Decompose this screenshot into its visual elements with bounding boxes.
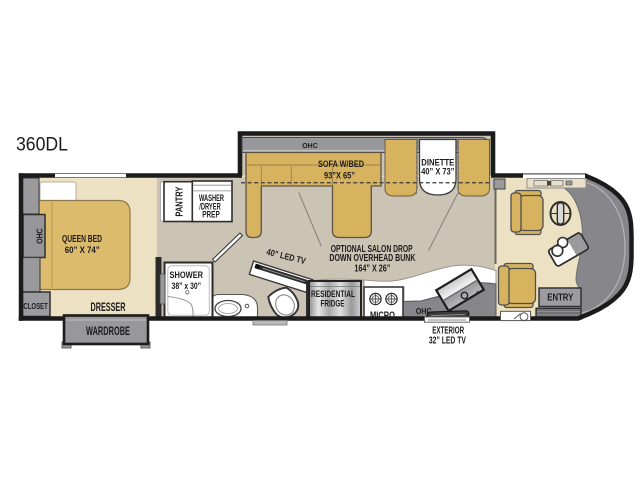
svg-text:93”X 65”: 93”X 65” [324, 170, 355, 181]
svg-text:360DL: 360DL [16, 135, 68, 156]
svg-text:60” X 74”: 60” X 74” [65, 245, 100, 256]
svg-text:38” x 30”: 38” x 30” [172, 281, 202, 292]
svg-text:OHC: OHC [36, 228, 45, 244]
svg-text:FRIDGE: FRIDGE [321, 299, 345, 310]
svg-text:CLOSET: CLOSET [23, 302, 48, 311]
svg-text:PREP: PREP [202, 210, 220, 220]
svg-text:164” X 26”: 164” X 26” [354, 263, 390, 274]
svg-text:WARDROBE: WARDROBE [86, 326, 130, 338]
svg-text:QUEEN BED: QUEEN BED [62, 234, 102, 245]
svg-text:ENTRY: ENTRY [547, 292, 573, 303]
svg-text:PANTRY: PANTRY [175, 186, 186, 216]
svg-text:32” LED TV: 32” LED TV [429, 336, 466, 347]
svg-text:DOWN OVERHEAD BUNK: DOWN OVERHEAD BUNK [329, 253, 415, 264]
svg-text:DRESSER: DRESSER [91, 302, 126, 314]
svg-text:OHC: OHC [302, 141, 318, 150]
svg-text:40” X 73”: 40” X 73” [421, 167, 454, 178]
svg-text:SHOWER: SHOWER [170, 270, 204, 281]
svg-text:SOFA W/BED: SOFA W/BED [318, 159, 364, 170]
